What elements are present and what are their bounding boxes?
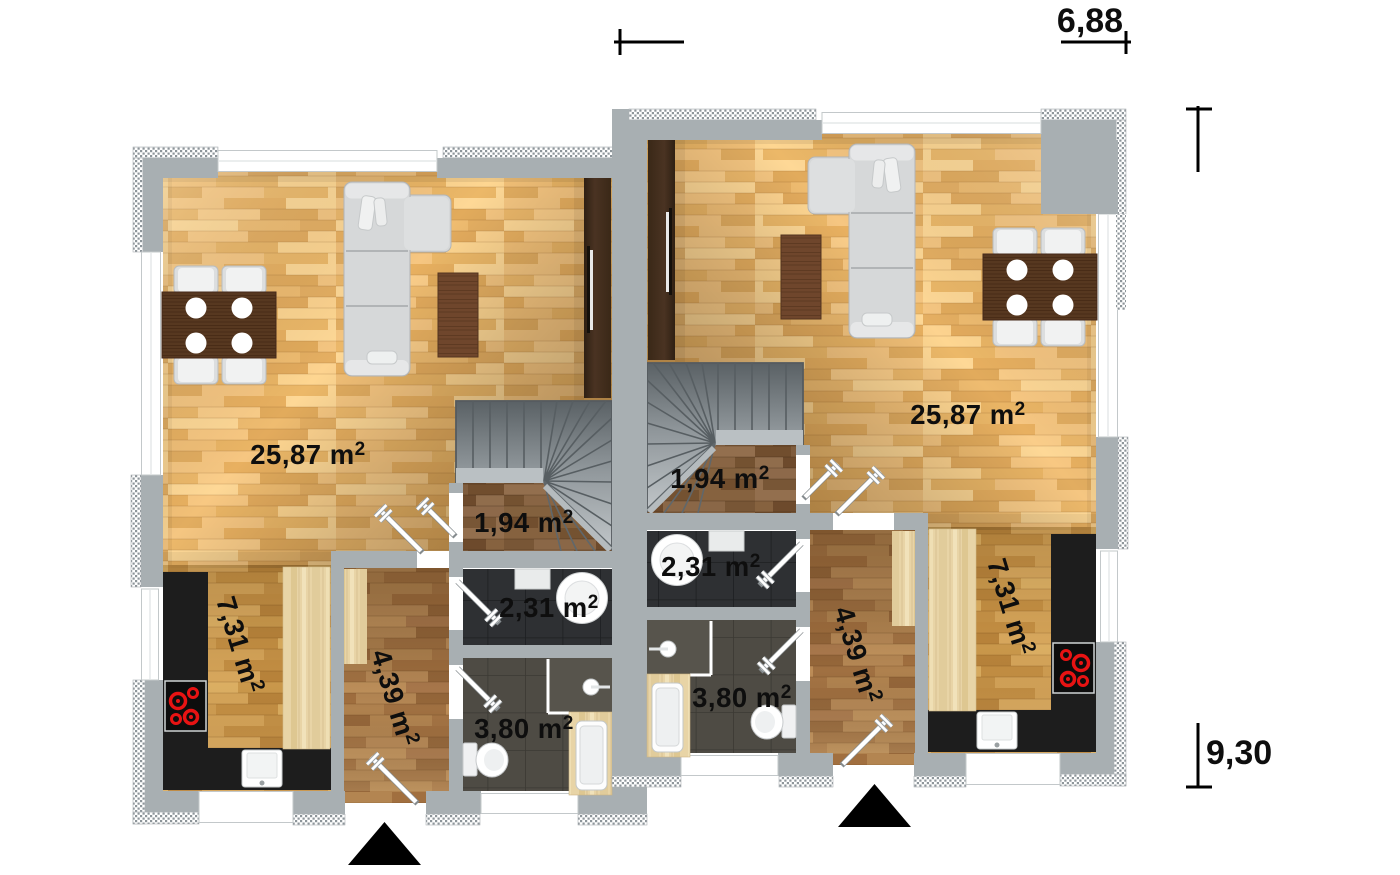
svg-text:25,87 m2: 25,87 m2 [910, 399, 1026, 430]
svg-text:2,31 m2: 2,31 m2 [661, 551, 761, 582]
svg-text:25,87 m2: 25,87 m2 [250, 439, 366, 470]
svg-text:6,88: 6,88 [1057, 2, 1123, 40]
svg-text:3,80 m2: 3,80 m2 [692, 682, 792, 713]
svg-text:1,94 m2: 1,94 m2 [474, 507, 574, 538]
svg-text:1,94 m2: 1,94 m2 [670, 463, 770, 494]
svg-text:9,30: 9,30 [1206, 734, 1272, 772]
svg-text:2,31 m2: 2,31 m2 [499, 592, 599, 623]
svg-text:3,80 m2: 3,80 m2 [474, 713, 574, 744]
